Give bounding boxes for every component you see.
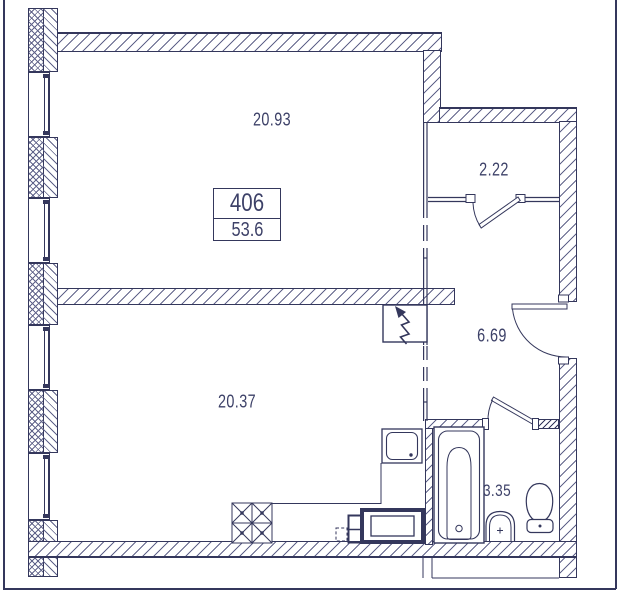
floor-plan: 20.93 2.22 6.69 20.37 3.35 406 53.6 bbox=[0, 0, 618, 599]
entrance-door bbox=[512, 295, 569, 364]
room-label-top: 20.93 bbox=[253, 110, 291, 131]
room-label-bottom: 20.37 bbox=[218, 392, 256, 413]
washbasin-icon bbox=[486, 512, 515, 542]
washing-machine-icon bbox=[336, 510, 423, 543]
closet-door bbox=[473, 197, 520, 228]
room-label-closet: 2.22 bbox=[479, 160, 509, 181]
toilet-icon bbox=[526, 484, 553, 533]
room-label-bathroom: 3.35 bbox=[483, 481, 511, 501]
unit-info-box: 406 53.6 bbox=[213, 188, 281, 241]
closet-partition bbox=[428, 195, 559, 203]
electrical-panel-icon bbox=[383, 305, 427, 344]
unit-total-area: 53.6 bbox=[214, 218, 280, 242]
slab-outline bbox=[423, 558, 559, 578]
bathroom-door bbox=[483, 397, 539, 430]
bathtub-icon bbox=[434, 427, 484, 543]
kitchen-sink-icon bbox=[382, 429, 422, 463]
stove-icon bbox=[232, 503, 272, 543]
kitchen-counter bbox=[272, 463, 381, 504]
unit-number: 406 bbox=[220, 189, 274, 218]
room-label-hallway: 6.69 bbox=[477, 326, 507, 347]
linework-layer bbox=[0, 0, 618, 599]
partition-opening-line bbox=[423, 123, 428, 421]
